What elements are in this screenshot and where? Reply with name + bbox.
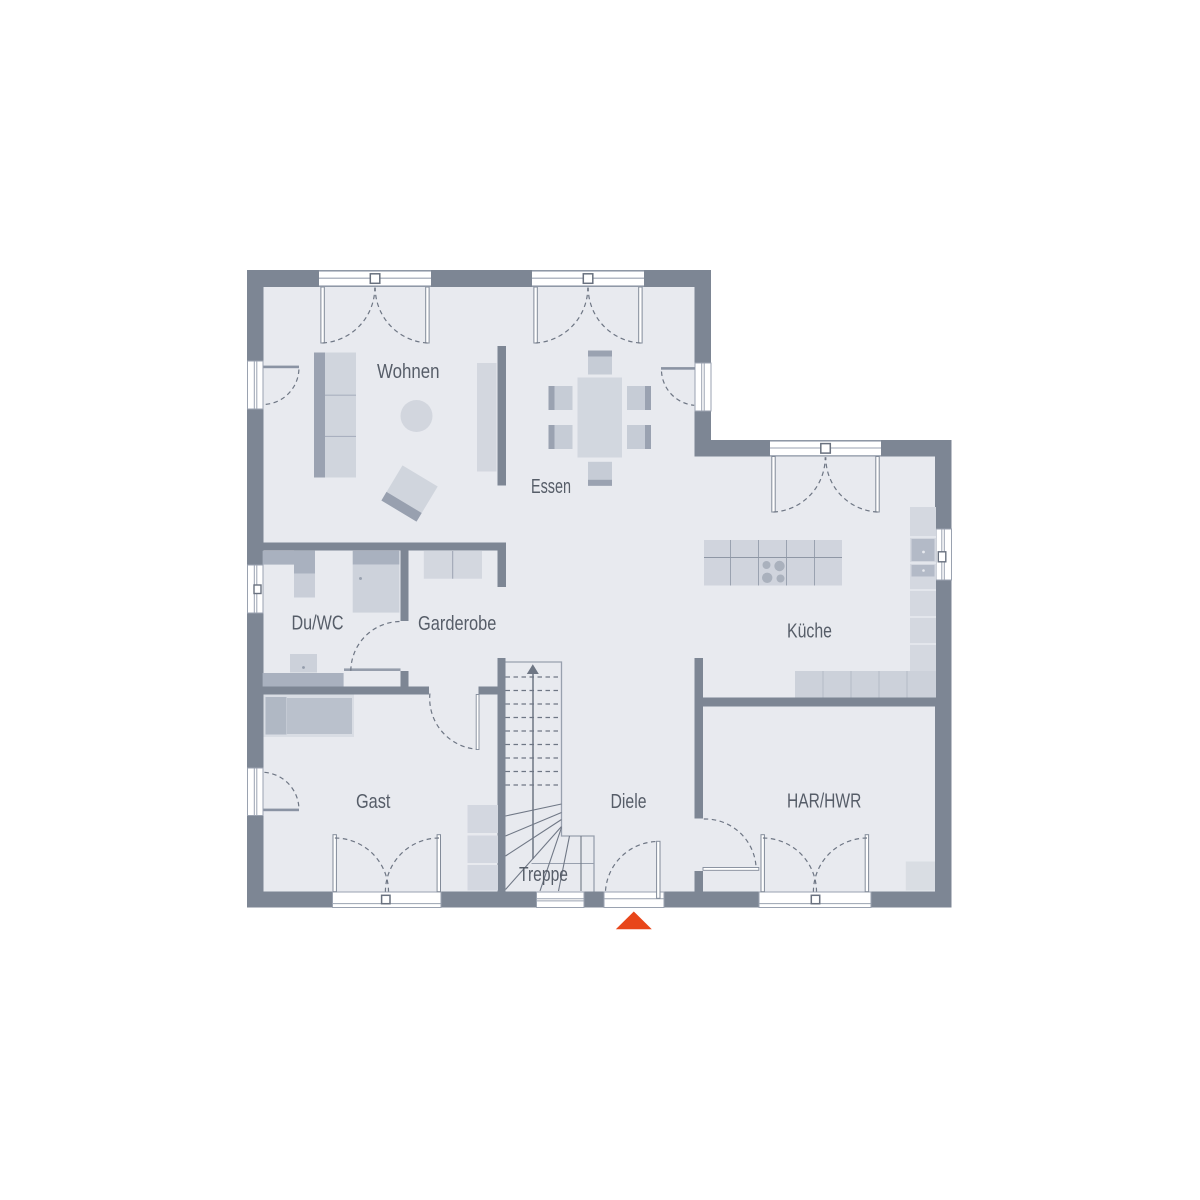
svg-text:HAR/HWR: HAR/HWR xyxy=(787,789,861,812)
svg-text:Treppe: Treppe xyxy=(519,863,568,886)
svg-text:Diele: Diele xyxy=(611,790,647,813)
svg-text:Gast: Gast xyxy=(356,790,391,813)
svg-text:Du/WC: Du/WC xyxy=(292,612,344,635)
svg-text:Garderobe: Garderobe xyxy=(418,612,496,635)
svg-text:Essen: Essen xyxy=(531,475,571,498)
svg-text:Wohnen: Wohnen xyxy=(377,360,440,383)
svg-text:Küche: Küche xyxy=(787,620,832,643)
